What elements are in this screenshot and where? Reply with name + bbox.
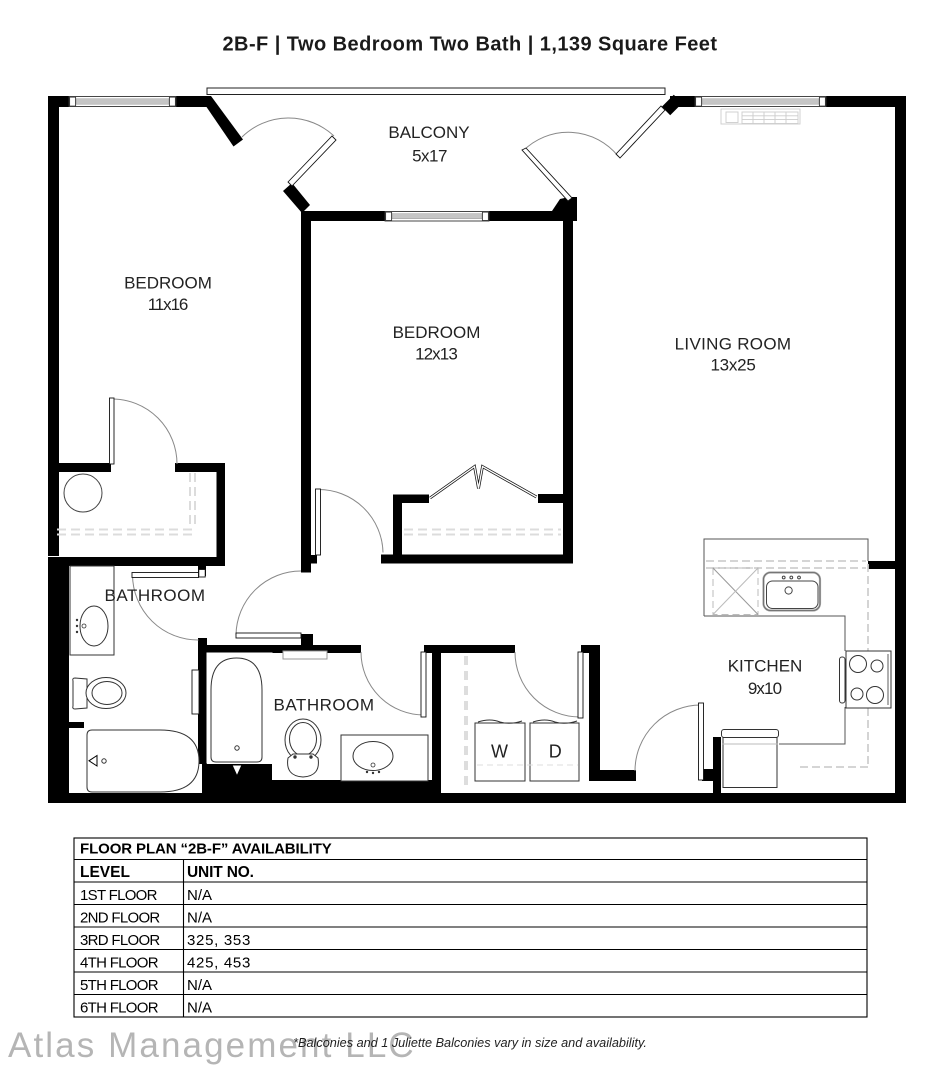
svg-text:1ST FLOOR: 1ST FLOOR <box>80 887 158 904</box>
svg-text:BEDROOM: BEDROOM <box>124 274 212 293</box>
svg-text:425, 453: 425, 453 <box>187 955 251 972</box>
svg-text:5TH FLOOR: 5TH FLOOR <box>80 977 159 994</box>
svg-text:LEVEL: LEVEL <box>80 864 130 881</box>
svg-text:UNIT NO.: UNIT NO. <box>187 864 254 881</box>
svg-text:BALCONY: BALCONY <box>388 123 469 142</box>
svg-text:5x17: 5x17 <box>412 147 447 166</box>
svg-text:4TH FLOOR: 4TH FLOOR <box>80 955 159 972</box>
svg-text:N/A: N/A <box>187 910 212 927</box>
svg-text:3RD FLOOR: 3RD FLOOR <box>80 932 160 949</box>
svg-text:BATHROOM: BATHROOM <box>105 586 206 605</box>
svg-text:*Balconies and 1 Juliette Balc: *Balconies and 1 Juliette Balconies vary… <box>293 1036 647 1050</box>
svg-text:W: W <box>491 742 508 762</box>
svg-text:2B-F | Two Bedroom Two Bath |: 2B-F | Two Bedroom Two Bath | 1,139 Squa… <box>222 34 717 56</box>
svg-text:KITCHEN: KITCHEN <box>728 657 803 676</box>
svg-text:N/A: N/A <box>187 887 212 904</box>
svg-text:12x13: 12x13 <box>415 345 457 364</box>
svg-text:N/A: N/A <box>187 977 212 994</box>
svg-text:11x16: 11x16 <box>148 295 188 314</box>
svg-text:LIVING ROOM: LIVING ROOM <box>675 335 792 354</box>
svg-text:BATHROOM: BATHROOM <box>274 696 375 715</box>
svg-text:13x25: 13x25 <box>710 356 755 375</box>
svg-text:BEDROOM: BEDROOM <box>393 323 481 342</box>
svg-text:2ND FLOOR: 2ND FLOOR <box>80 910 160 927</box>
svg-text:9x10: 9x10 <box>748 679 782 698</box>
svg-text:D: D <box>549 742 562 762</box>
svg-text:FLOOR PLAN “2B-F” AVAILABILITY: FLOOR PLAN “2B-F” AVAILABILITY <box>80 841 332 858</box>
svg-text:6TH FLOOR: 6TH FLOOR <box>80 1000 159 1017</box>
svg-text:N/A: N/A <box>187 1000 212 1017</box>
svg-text:325, 353: 325, 353 <box>187 932 251 949</box>
